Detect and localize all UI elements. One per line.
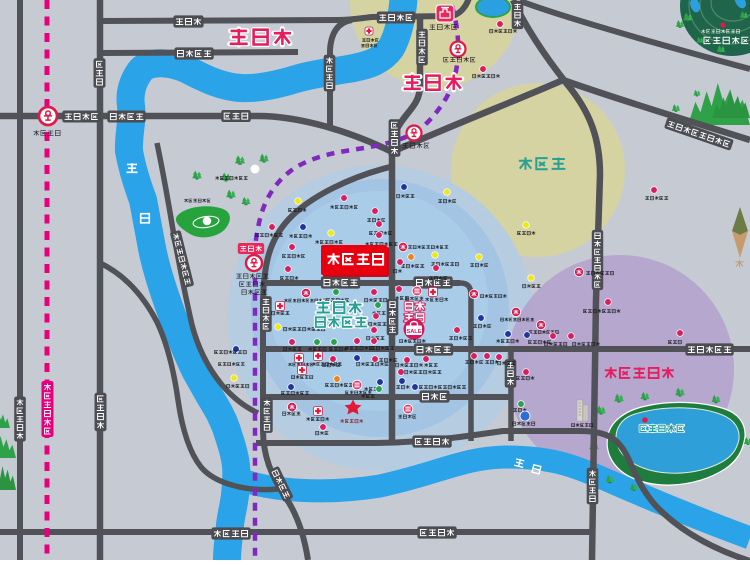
svg-text:SALE: SALE <box>407 329 422 335</box>
